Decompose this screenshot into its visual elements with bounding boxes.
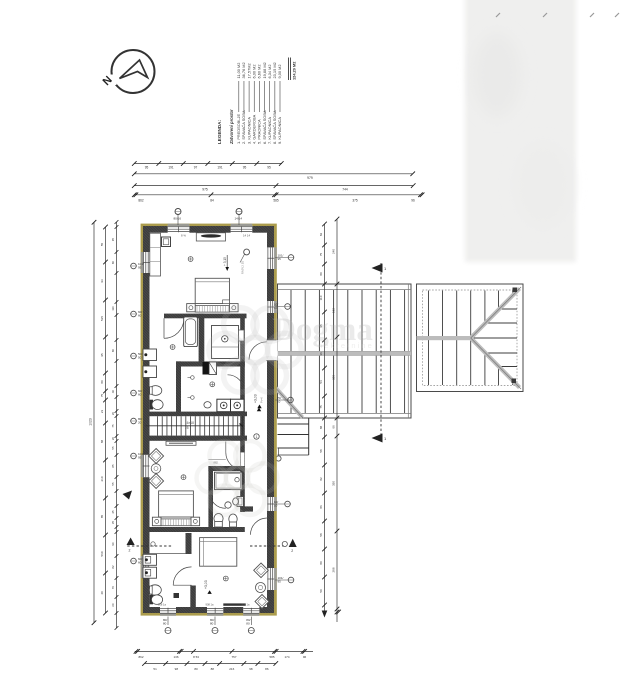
svg-text:20: 20 [138, 421, 142, 425]
svg-text:50: 50 [138, 356, 142, 360]
svg-text:560: 560 [100, 551, 104, 556]
svg-text:95: 95 [145, 165, 149, 169]
svg-text:975: 975 [202, 187, 208, 191]
svg-text:66: 66 [332, 425, 336, 429]
svg-text:75: 75 [100, 394, 104, 398]
svg-text:40: 40 [100, 591, 104, 595]
svg-text:95: 95 [267, 165, 271, 169]
svg-text:757: 757 [231, 655, 236, 659]
svg-text:14 14: 14 14 [243, 234, 250, 238]
svg-text:96: 96 [303, 655, 307, 659]
svg-text:25: 25 [185, 426, 189, 430]
svg-text:1023: 1023 [89, 418, 93, 426]
svg-text:60: 60 [138, 314, 142, 318]
svg-text:110: 110 [319, 295, 323, 300]
svg-text:60: 60 [138, 393, 142, 397]
svg-text:90: 90 [111, 542, 115, 546]
svg-text:86: 86 [319, 505, 323, 509]
svg-text:80: 80 [210, 621, 214, 625]
svg-text:88: 88 [319, 426, 323, 430]
svg-text:2: 2 [291, 549, 293, 553]
svg-text:8 53: 8 53 [193, 655, 199, 659]
svg-text:80: 80 [111, 261, 115, 265]
svg-text:744: 744 [342, 187, 348, 191]
svg-text:98: 98 [175, 667, 179, 671]
svg-text:585: 585 [269, 655, 274, 659]
svg-text:20: 20 [111, 412, 115, 416]
svg-text:51: 51 [153, 667, 157, 671]
svg-text:55: 55 [111, 446, 115, 450]
svg-text:2: 2 [129, 549, 131, 553]
svg-text:58: 58 [319, 533, 323, 537]
svg-text:60: 60 [111, 603, 115, 607]
svg-text:80: 80 [194, 667, 198, 671]
svg-text:10: 10 [277, 400, 281, 404]
svg-text:LEGENDA:: LEGENDA: [217, 120, 222, 144]
svg-text:98: 98 [249, 667, 253, 671]
svg-text:88: 88 [211, 667, 215, 671]
svg-text:85: 85 [100, 515, 104, 519]
svg-text:908 1a: 908 1a [158, 603, 166, 607]
svg-text:+ 3,15: + 3,15 [223, 257, 227, 266]
svg-text:862: 862 [138, 199, 144, 203]
svg-text:Zatvoreni prostor: Zatvoreni prostor [229, 109, 234, 145]
svg-text:9,00 M2: 9,00 M2 [277, 64, 282, 78]
svg-text:95: 95 [278, 257, 282, 261]
svg-text:23: 23 [100, 410, 104, 414]
svg-text:908 1a: 908 1a [206, 603, 214, 607]
svg-text:84: 84 [210, 199, 214, 203]
svg-text:1: 1 [256, 435, 258, 439]
svg-text:8 %: 8 % [181, 234, 186, 238]
svg-text:979: 979 [307, 176, 313, 180]
svg-text:80/16: 80/16 [174, 217, 182, 221]
svg-text:54: 54 [319, 380, 323, 384]
svg-text:300: 300 [332, 375, 336, 380]
svg-text:+3,03: +3,03 [254, 394, 258, 403]
svg-text:95: 95 [111, 238, 115, 242]
svg-text:20: 20 [111, 437, 115, 441]
svg-text:95: 95 [100, 353, 104, 357]
svg-text:97: 97 [194, 165, 198, 169]
svg-text:RASVJ. 2D: RASVJ. 2D [241, 261, 245, 274]
svg-text:95: 95 [138, 266, 142, 270]
svg-text:375: 375 [352, 199, 358, 203]
svg-text:95: 95 [278, 580, 282, 584]
svg-text:240: 240 [332, 249, 336, 254]
svg-text:95: 95 [138, 456, 142, 460]
svg-text:174: 174 [284, 655, 289, 659]
svg-text:10: 10 [274, 504, 278, 508]
svg-text:96: 96 [411, 199, 415, 203]
svg-text:85: 85 [111, 464, 115, 468]
svg-text:93: 93 [100, 279, 104, 283]
svg-text:80: 80 [319, 272, 323, 276]
svg-text:82: 82 [319, 233, 323, 237]
svg-text:210: 210 [100, 476, 104, 481]
svg-text:60: 60 [138, 561, 142, 565]
svg-text:80: 80 [319, 561, 323, 565]
svg-text:86: 86 [265, 667, 269, 671]
svg-text:95: 95 [243, 165, 247, 169]
svg-text:55: 55 [111, 482, 115, 486]
svg-text:80: 80 [100, 380, 104, 384]
svg-text:908 1a: 908 1a [242, 603, 250, 607]
svg-text:40: 40 [111, 390, 115, 394]
svg-text:45: 45 [111, 510, 115, 514]
svg-text:82: 82 [319, 477, 323, 481]
svg-text:136: 136 [173, 655, 178, 659]
svg-text:75: 75 [319, 405, 323, 409]
svg-text:75: 75 [319, 253, 323, 257]
svg-text:110: 110 [111, 306, 115, 311]
svg-text:14/14: 14/14 [235, 217, 243, 221]
svg-text:535: 535 [100, 316, 104, 321]
svg-text:16×18: 16×18 [185, 421, 194, 425]
svg-text:80: 80 [111, 349, 115, 353]
svg-text:88: 88 [100, 440, 104, 444]
svg-text:70: 70 [111, 586, 115, 590]
svg-text:36: 36 [319, 352, 323, 356]
svg-text:124,29 M2: 124,29 M2 [292, 61, 297, 80]
svg-text:58: 58 [319, 449, 323, 453]
svg-text:55: 55 [100, 243, 104, 247]
svg-text:50: 50 [319, 589, 323, 593]
svg-text:75: 75 [111, 424, 115, 428]
svg-text:9. KUPAONICA: 9. KUPAONICA [277, 117, 282, 144]
svg-text:862: 862 [138, 655, 143, 659]
svg-text:80: 80 [163, 621, 167, 625]
svg-text:191: 191 [217, 165, 223, 169]
svg-text:585: 585 [273, 199, 279, 203]
svg-text:80: 80 [246, 621, 250, 625]
svg-text:+3,03: +3,03 [204, 580, 208, 589]
svg-text:n e k r e t n i n e: n e k r e t n i n e [318, 341, 372, 350]
svg-text:35: 35 [111, 521, 115, 525]
svg-text:191: 191 [168, 165, 174, 169]
svg-text:350: 350 [332, 481, 336, 486]
svg-text:216: 216 [229, 667, 234, 671]
svg-text:82: 82 [111, 565, 115, 569]
svg-text:288: 288 [332, 567, 336, 572]
svg-text:Pv=0: Pv=0 [260, 396, 264, 403]
